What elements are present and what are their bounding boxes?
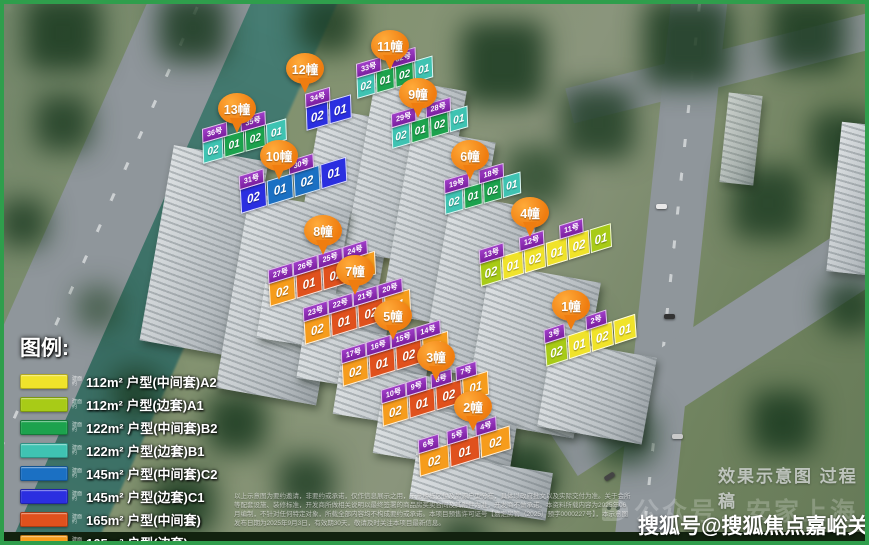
legend-row: 建面约 165m² 户型(中间套) <box>20 508 217 531</box>
building-12-strip: 020134号 <box>303 95 355 130</box>
legend-area-note: 建面约 <box>72 423 84 433</box>
building-4-unit-01: 01 <box>546 237 568 267</box>
legend-swatch-a2 <box>20 374 68 389</box>
building-12-pin-label: 12幢 <box>286 53 324 84</box>
legend-swatch-165-mid <box>20 512 68 527</box>
legend-label: 122m² 户型(边套)B1 <box>86 441 204 460</box>
building-3-pin: 3幢 <box>416 341 456 372</box>
building-1-pin: 1幢 <box>551 290 591 321</box>
building-12-unit-01: 01 <box>329 94 352 124</box>
legend-row: 建面约 165m² 户型(边套) <box>20 531 217 545</box>
building-11-pin: 11幢 <box>370 30 410 61</box>
building-3-pin-label: 3幢 <box>417 341 455 372</box>
legend-label: 165m² 户型(中间套) <box>86 510 201 529</box>
building-9-pin: 9幢 <box>398 78 438 109</box>
building-5-pin-label: 5幢 <box>374 300 412 331</box>
building-7-pin-label: 7幢 <box>336 255 374 286</box>
building-10-pin-label: 10幢 <box>260 140 298 171</box>
legend-label: 145m² 户型(中间套)C2 <box>86 464 217 483</box>
building-2-pin: 2幢 <box>453 391 493 422</box>
legend-row: 建面约 145m² 户型(边套)C1 <box>20 485 217 508</box>
legend-area-note: 建面约 <box>72 377 84 387</box>
building-8-pin-label: 8幢 <box>304 215 342 246</box>
building-7-pin: 7幢 <box>335 255 375 286</box>
legend-area-note: 建面约 <box>72 446 84 456</box>
building-5-pin: 5幢 <box>373 300 413 331</box>
legend-row: 建面约 145m² 户型(中间套)C2 <box>20 462 217 485</box>
building-8-pin: 8幢 <box>303 215 343 246</box>
sohu-watermark: 搜狐号@搜狐焦点嘉峪关站 <box>638 510 869 540</box>
legend-row: 建面约 112m² 户型(中间套)A2 <box>20 370 217 393</box>
legend: 图例: 建面约 112m² 户型(中间套)A2 建面约 112m² 户型(边套)… <box>20 332 217 545</box>
building-1-unit-01: 01 <box>613 314 637 345</box>
legend-label: 112m² 户型(边套)A1 <box>86 395 204 414</box>
building-1-strip: 020102013号2号 <box>542 315 639 366</box>
building-12-pin: 12幢 <box>285 53 325 84</box>
legend-swatch-b2 <box>20 420 68 435</box>
legend-label: 165m² 户型(边套) <box>86 533 188 545</box>
building-13-pin: 13幢 <box>217 93 257 124</box>
building-10-unit-01: 01 <box>320 157 347 190</box>
legend-title: 图例: <box>20 332 217 362</box>
legend-area-note: 建面约 <box>72 515 84 525</box>
building-2-strip: 0201026号5号4号 <box>416 426 514 476</box>
building-10-pin: 10幢 <box>259 140 299 171</box>
legend-label: 122m² 户型(中间套)B2 <box>86 418 217 437</box>
building-6-pin: 6幢 <box>450 140 490 171</box>
legend-label: 145m² 户型(边套)C1 <box>86 487 204 506</box>
building-4-pin-label: 4幢 <box>511 197 549 228</box>
legend-swatch-165-edge <box>20 535 68 545</box>
building-9-unit-01: 01 <box>449 106 468 133</box>
legend-swatch-c1 <box>20 489 68 504</box>
legend-row: 建面约 112m² 户型(边套)A1 <box>20 393 217 416</box>
building-4-strip: 02010201020113号12号11号 <box>477 224 615 286</box>
building-11-pin-label: 11幢 <box>371 30 409 61</box>
building-13-pin-label: 13幢 <box>218 93 256 124</box>
building-4-unit-01: 01 <box>502 250 524 280</box>
draft-note: 效果示意图 过程稿 <box>718 462 865 512</box>
legend-area-note: 建面约 <box>72 538 84 545</box>
legend-area-note: 建面约 <box>72 469 84 479</box>
building-2-pin-label: 2幢 <box>454 391 492 422</box>
building-1-pin-label: 1幢 <box>552 290 590 321</box>
legend-label: 112m² 户型(中间套)A2 <box>86 372 217 391</box>
legend-row: 建面约 122m² 户型(中间套)B2 <box>20 416 217 439</box>
building-6-pin-label: 6幢 <box>451 140 489 171</box>
legend-swatch-a1 <box>20 397 68 412</box>
building-4-pin: 4幢 <box>510 197 550 228</box>
building-4-unit-01: 01 <box>590 223 612 253</box>
disclaimer-text: 以上示意图为要约邀请，非要约或承诺，仅作信息展示之用，示意楼栋区位及房源户型分布… <box>234 492 632 528</box>
legend-swatch-b1 <box>20 443 68 458</box>
legend-area-note: 建面约 <box>72 400 84 410</box>
legend-row: 建面约 122m² 户型(边套)B1 <box>20 439 217 462</box>
legend-swatch-c2 <box>20 466 68 481</box>
legend-area-note: 建面约 <box>72 492 84 502</box>
building-6-unit-01: 01 <box>502 172 521 199</box>
building-9-pin-label: 9幢 <box>399 78 437 109</box>
site-plan-rendering: 0201020136号35号13幢020134号12幢0201020133号32… <box>0 0 869 545</box>
